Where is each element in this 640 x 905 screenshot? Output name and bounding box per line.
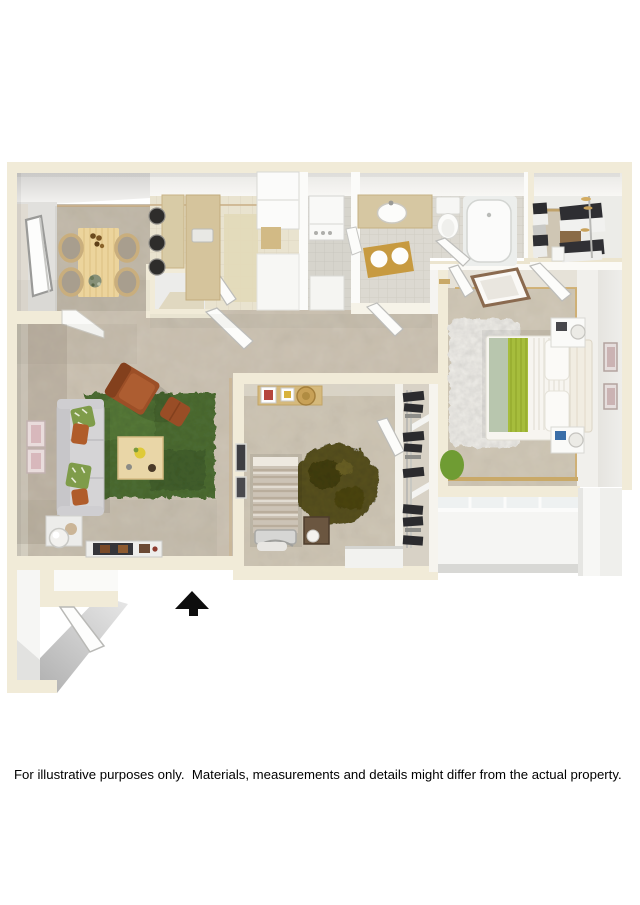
svg-text:For illustrative purposes only: For illustrative purposes only. Material… <box>14 767 622 782</box>
